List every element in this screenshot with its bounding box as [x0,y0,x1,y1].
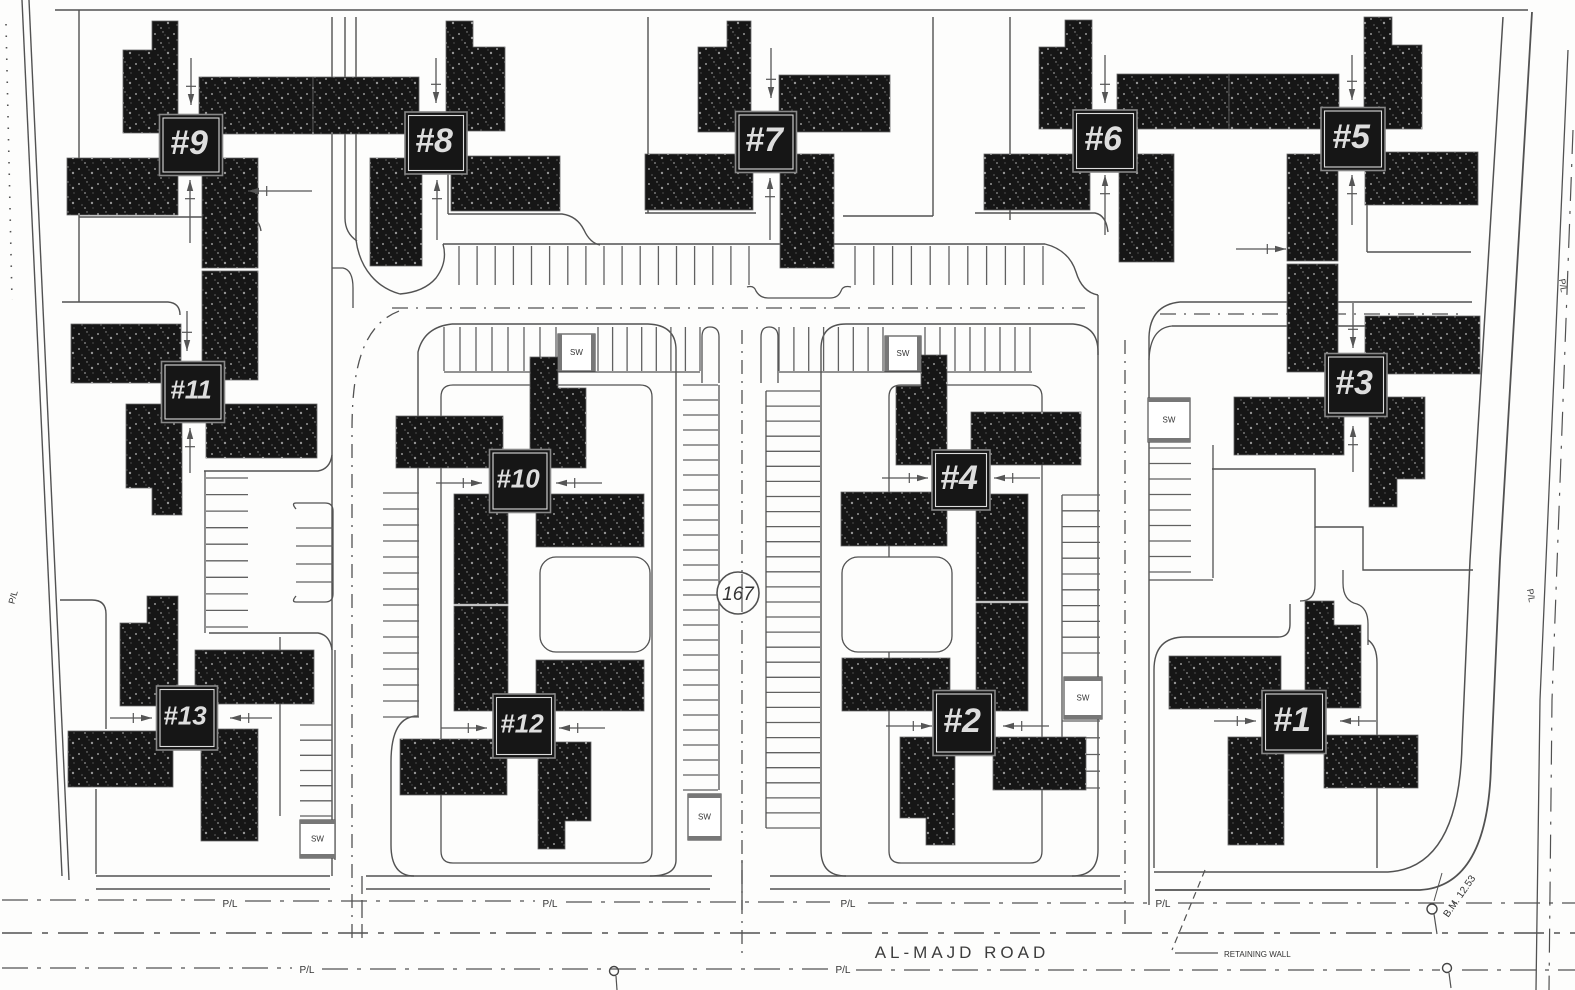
svg-text:#9: #9 [170,124,208,162]
svg-text:RETAINING WALL: RETAINING WALL [1224,950,1291,959]
svg-text:#1: #1 [1273,701,1311,739]
svg-text:#4: #4 [940,459,978,497]
svg-text:SW: SW [1163,416,1176,425]
svg-text:#5: #5 [1332,118,1371,156]
svg-text:P/L: P/L [299,965,314,976]
svg-text:SW: SW [897,349,910,358]
svg-text:SW: SW [1077,694,1090,703]
svg-text:SW: SW [311,835,324,844]
svg-text:#10: #10 [496,463,540,493]
svg-text:#8: #8 [415,122,453,160]
svg-text:P/L: P/L [840,899,855,910]
svg-text:P/L: P/L [1155,899,1170,910]
svg-text:#3: #3 [1335,364,1373,402]
svg-text:#2: #2 [943,702,981,740]
svg-text:#11: #11 [170,374,211,404]
svg-text:P/L: P/L [222,899,237,910]
svg-text:167: 167 [722,584,755,605]
svg-text:#6: #6 [1084,120,1123,158]
svg-text:P/L: P/L [542,899,557,910]
svg-text:SW: SW [698,813,711,822]
svg-text:#12: #12 [500,708,544,738]
svg-text:#13: #13 [163,700,207,730]
svg-text:AL-MAJD ROAD: AL-MAJD ROAD [875,943,1050,962]
svg-text:SW: SW [570,348,583,357]
svg-text:#7: #7 [745,121,785,159]
svg-text:P/L: P/L [835,965,850,976]
